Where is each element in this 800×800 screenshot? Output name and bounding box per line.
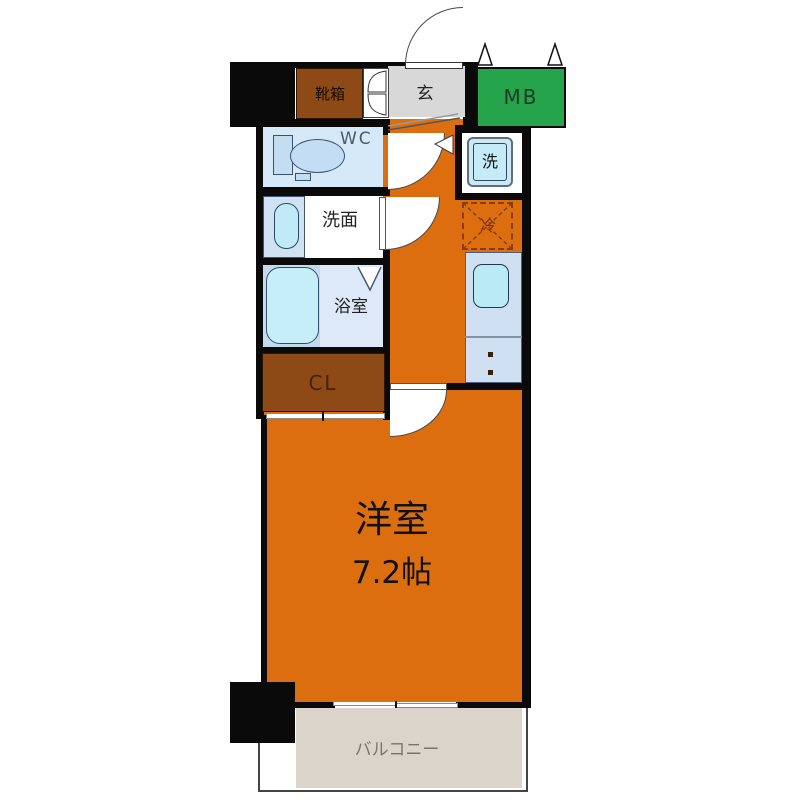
entrance-door-leaf	[405, 62, 463, 69]
main-room-door-leaf	[390, 383, 447, 390]
balcony-outline-bottom	[258, 790, 528, 792]
sliding-window-pane	[333, 701, 397, 706]
closet-label: CL	[295, 372, 351, 394]
wall-row1-bottom	[230, 119, 390, 127]
main-room-title: 洋室 7.2帖	[282, 495, 502, 585]
wall-washer-bottom	[455, 193, 531, 200]
entrance-door-arc	[405, 7, 463, 65]
wall-right	[522, 125, 531, 708]
stove-knob-icon	[488, 370, 493, 375]
shoe-box-label: 靴箱	[299, 85, 361, 103]
closet-sliding-door	[266, 413, 385, 419]
balcony-label: バルコニー	[347, 740, 447, 760]
washer-label: 洗	[481, 153, 499, 171]
kitchen-counter-divider	[465, 336, 522, 338]
shoe-box-door	[363, 68, 389, 118]
bathtub-icon	[266, 267, 319, 344]
wc-label: WC	[340, 131, 373, 148]
wall-kitchen-bottom	[447, 383, 531, 390]
main-room-label: 洋室	[355, 489, 429, 543]
balcony-outline-right	[526, 708, 528, 792]
vent-triangle-icon	[548, 44, 562, 65]
washroom-label: 洗面	[312, 211, 368, 231]
fridge-label: 冷	[479, 217, 497, 235]
vent-triangle-icon	[478, 44, 492, 65]
toilet-bowl-icon	[290, 139, 345, 173]
toilet-handle-icon	[295, 173, 311, 181]
window-tick	[395, 701, 397, 708]
meter-box-label: MB	[491, 86, 551, 108]
kitchen-sink-icon	[473, 264, 509, 308]
floor-plan: 玄 靴箱 MB WC 洗面 浴室 CL 洗 冷 洋室 7.2帖	[0, 0, 800, 800]
bathroom-label: 浴室	[325, 297, 377, 317]
wall-top-left-block	[230, 62, 295, 125]
wall-left-lower	[261, 415, 267, 707]
stove-knob-icon	[488, 352, 493, 357]
balcony-outline-left	[258, 743, 260, 792]
main-room-size: 7.2帖	[352, 547, 432, 592]
wall-washer-left	[455, 125, 462, 200]
wall-washroom-bath	[256, 258, 390, 265]
wall-pillar-bottom-left	[230, 682, 295, 743]
washroom-door-leaf	[379, 197, 386, 250]
entrance-label: 玄	[408, 84, 442, 104]
closet-door-tick	[322, 412, 324, 421]
wall-wc-washroom	[263, 187, 390, 196]
sink-icon	[274, 203, 299, 249]
